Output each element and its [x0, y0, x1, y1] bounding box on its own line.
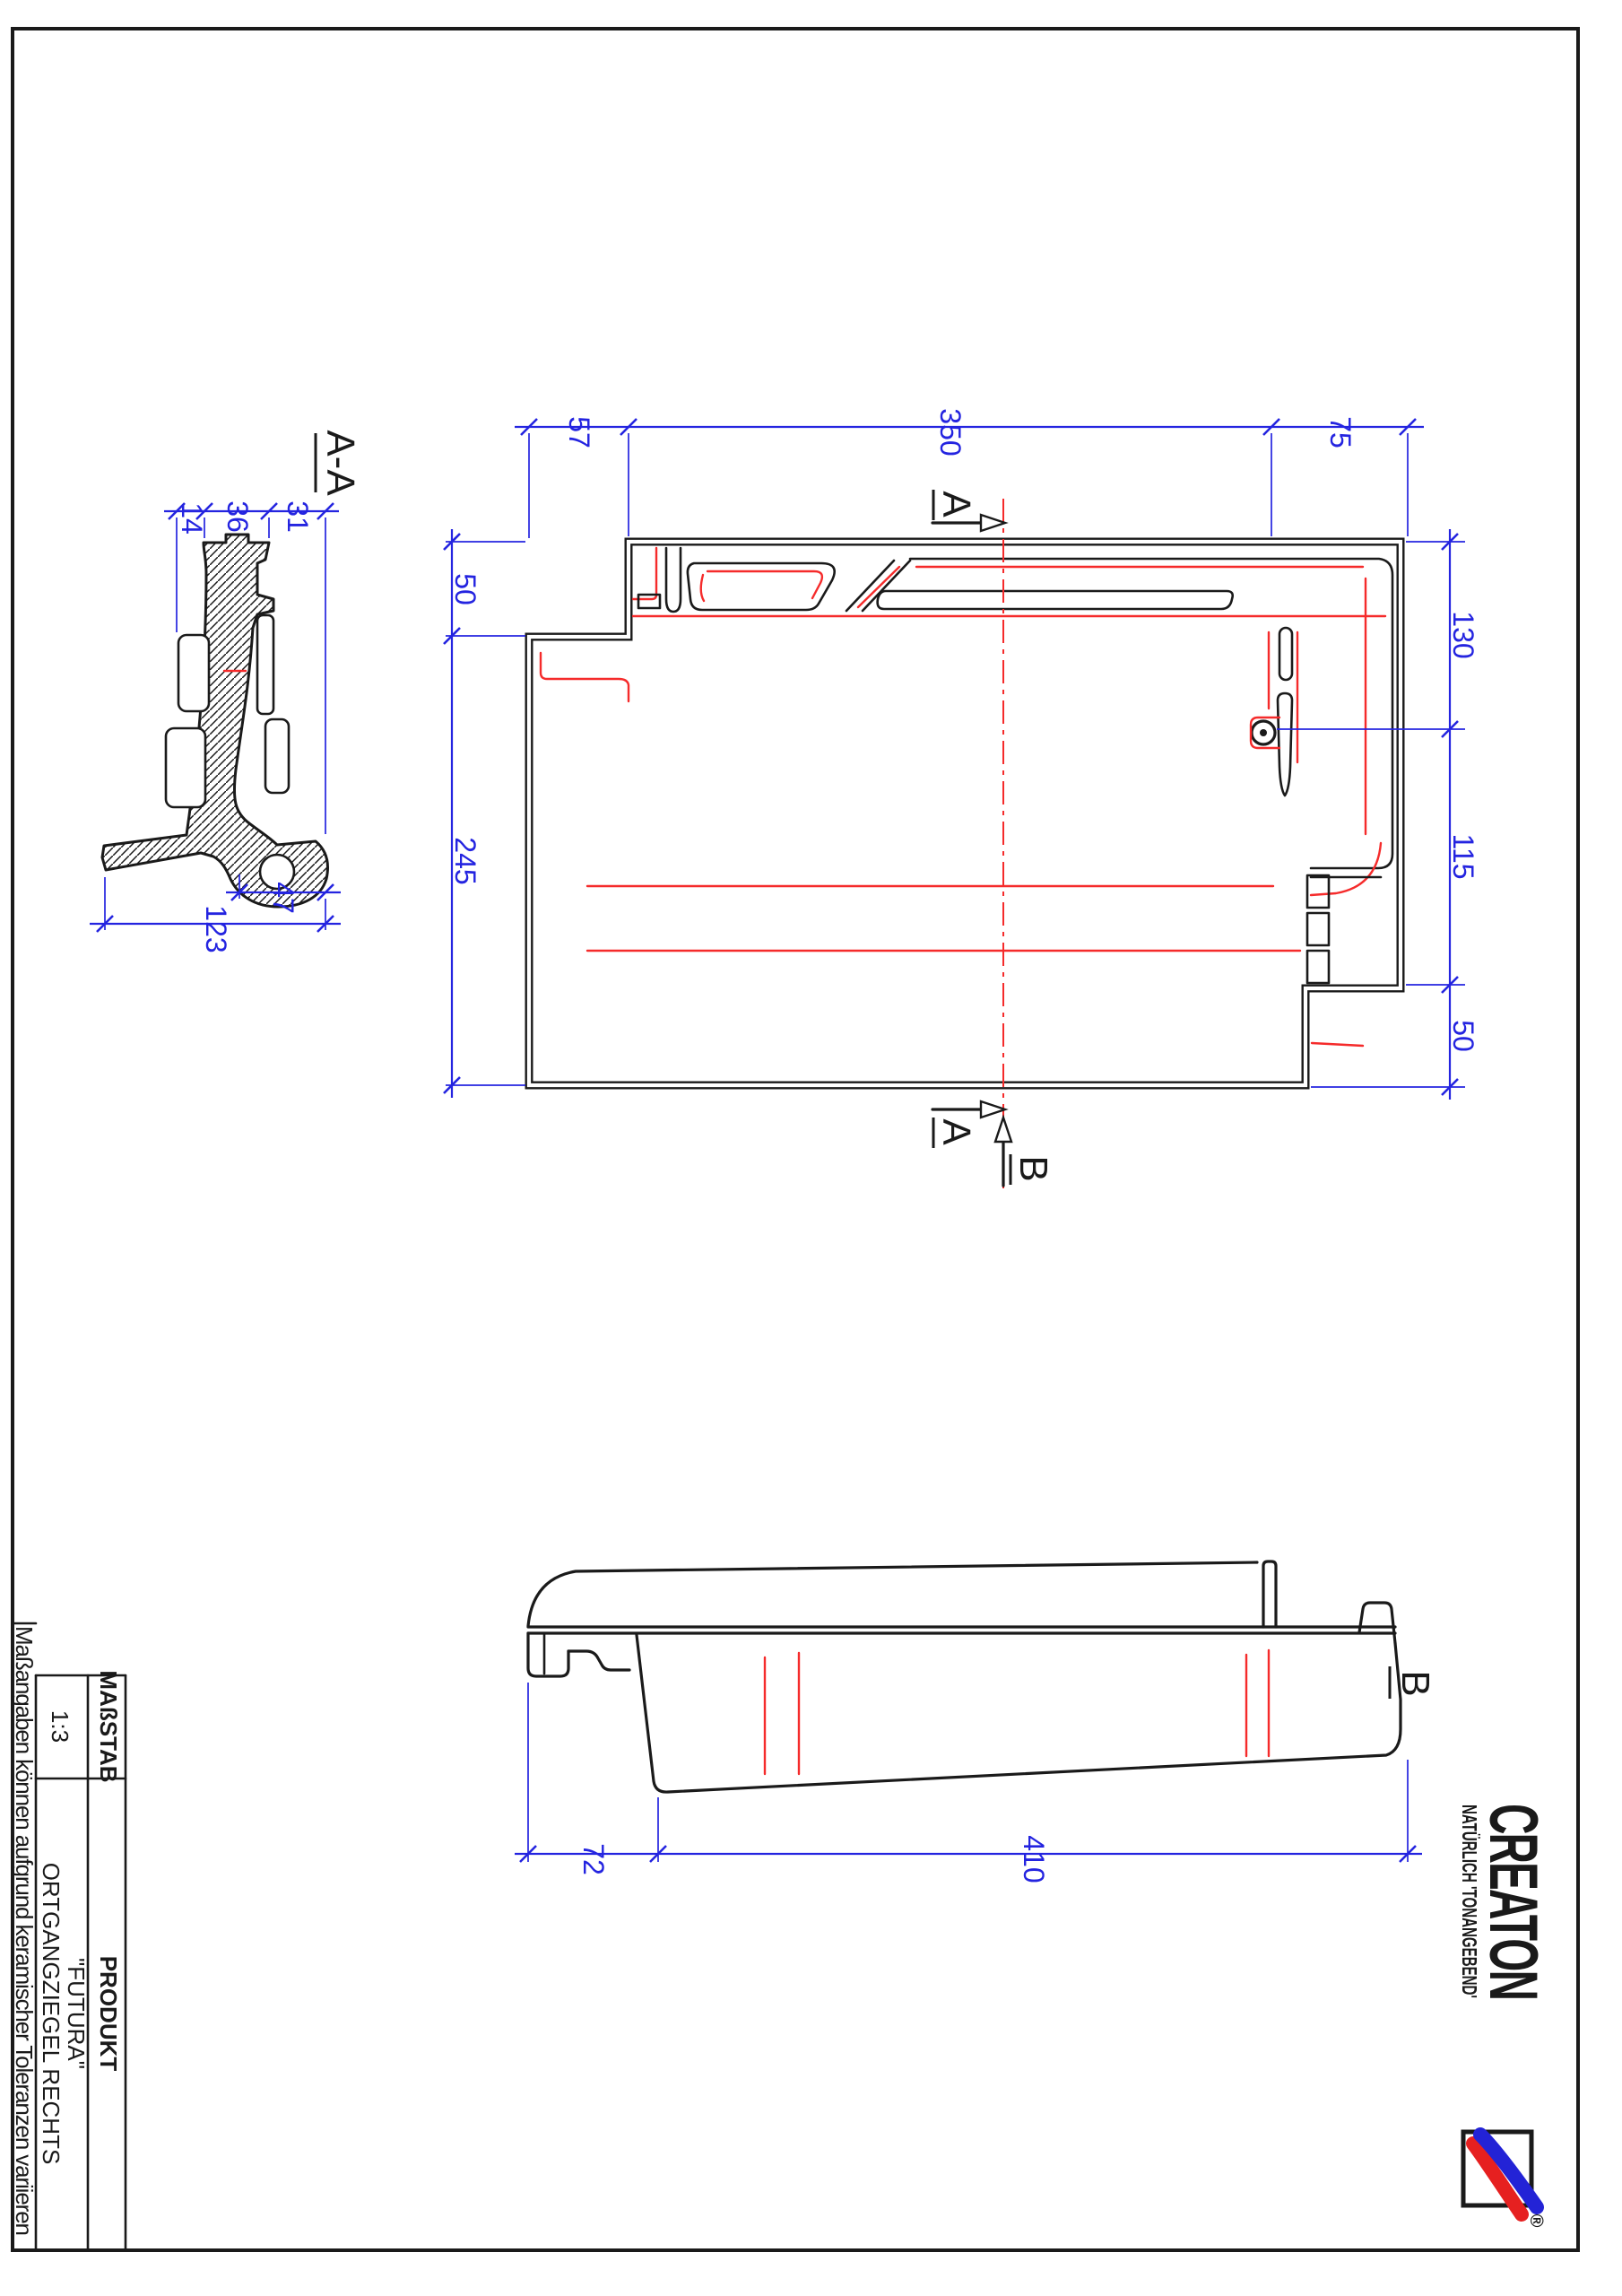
title-product-header: PRODUKT — [95, 1956, 122, 2072]
creaton-tagline-text: NATÜRLICH 'TONANGEBEND' — [1458, 1805, 1481, 1998]
dim-b-72: 72 — [577, 1843, 610, 1875]
section-aa-profile — [102, 535, 328, 907]
cut-label-a-top: A — [934, 491, 978, 517]
dim-aa-14: 14 — [176, 502, 208, 535]
plan-outline — [529, 542, 1401, 1085]
dim-aa-123: 123 — [200, 905, 232, 952]
cut-marker-b: B — [995, 1118, 1055, 1186]
dim-plan-245: 245 — [449, 837, 481, 884]
dim-aa-36: 36 — [221, 500, 254, 533]
dim-b-410: 410 — [1018, 1835, 1050, 1883]
title-product-line1: "FUTURA" — [63, 1958, 90, 2069]
page-border — [13, 29, 1578, 2250]
section-aa-label: A-A — [318, 430, 362, 496]
section-aa-view: 14 36 31 47 123 A-A — [90, 430, 362, 952]
section-aa-rib-left-lower — [166, 728, 205, 807]
drawing-sheet: 14 36 31 47 123 A-A — [0, 0, 1622, 2296]
b-view: 72 410 B — [515, 1561, 1437, 1883]
plan-red-lines — [541, 653, 1300, 951]
title-scale-value: 1:3 — [47, 1710, 74, 1743]
creaton-brand-text: CREATON — [1475, 1804, 1551, 1999]
section-aa-rib-left-upper — [178, 635, 209, 711]
plan-right-interlock — [1251, 628, 1381, 1046]
plan-top-dims: 57 350 75 — [515, 408, 1424, 538]
title-block: MAßSTAB 1:3 PRODUKT "FUTURA" ORTGANGZIEG… — [11, 1623, 126, 2250]
cut-marker-a-bottom: A — [932, 1101, 1005, 1148]
dim-aa-47: 47 — [267, 882, 299, 914]
dim-plan-50-right: 50 — [1447, 1020, 1479, 1052]
creaton-registered-mark: ® — [1526, 2214, 1546, 2228]
cut-label-b: B — [1011, 1155, 1055, 1181]
title-disclaimer: Maßangaben können aufgrund keramischer T… — [11, 1626, 38, 2236]
creaton-logo: CREATON NATÜRLICH 'TONANGEBEND' ® — [1458, 1804, 1551, 2228]
b-view-label: B — [1393, 1670, 1437, 1696]
b-view-dims: 72 410 — [515, 1683, 1422, 1883]
plan-view: 57 350 75 50 245 130 115 50 — [444, 408, 1479, 1188]
dim-plan-57: 57 — [563, 416, 595, 448]
title-product-line2: ORTGANGZIEGEL RECHTS — [38, 1863, 65, 2165]
dim-plan-130: 130 — [1447, 611, 1479, 658]
cut-marker-a-top: A — [932, 490, 1005, 531]
dim-plan-115: 115 — [1447, 833, 1479, 879]
dim-aa-31: 31 — [282, 500, 314, 533]
cad-drawing: 14 36 31 47 123 A-A — [0, 0, 1622, 2296]
section-aa-rib-right-upper — [257, 615, 273, 714]
plan-left-dims: 50 245 — [444, 529, 525, 1098]
title-scale-header: MAßSTAB — [95, 1670, 122, 1782]
cut-label-a-bottom: A — [934, 1118, 978, 1145]
dim-plan-75: 75 — [1324, 416, 1357, 448]
section-aa-rib-right-lower — [265, 719, 289, 793]
dim-plan-350: 350 — [934, 408, 967, 456]
dim-plan-50-left: 50 — [449, 573, 481, 605]
